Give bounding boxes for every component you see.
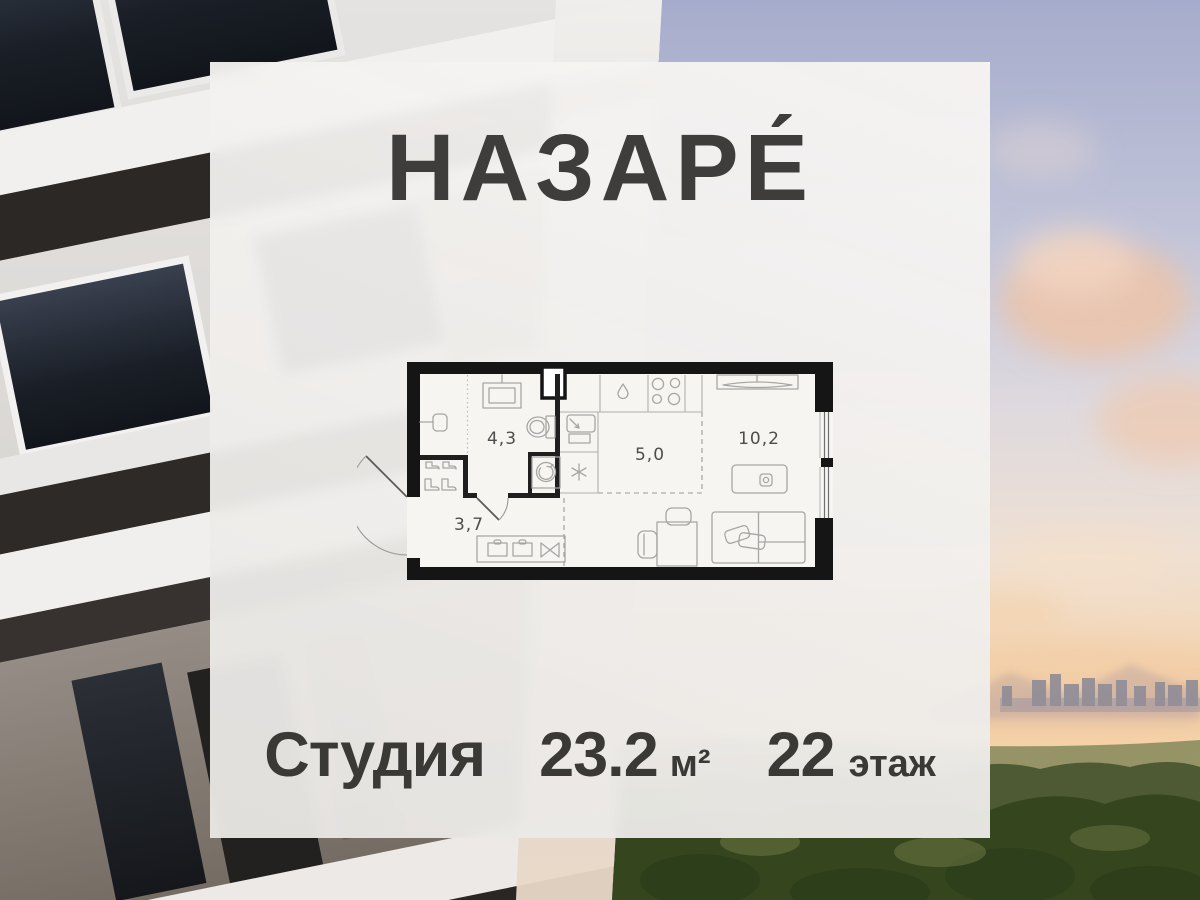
listing-card[interactable]: НАЗАРЕ́	[210, 62, 990, 838]
floorplan-image: 4,3 5,0 10,2 3,7	[357, 354, 841, 588]
room-area-hallway: 3,7	[454, 515, 484, 535]
entrance-door	[357, 456, 407, 555]
project-title: НАЗАРЕ́	[210, 121, 990, 216]
shaft	[542, 367, 565, 398]
floor-unit-label: этаж	[849, 743, 936, 786]
apartment-type-label: Студия	[264, 719, 485, 791]
floorplan-floor	[407, 362, 833, 580]
area-unit-label: м²	[670, 743, 711, 786]
stats-row: Студия 23.2 м² 22 этаж	[210, 719, 990, 791]
room-area-living: 10,2	[738, 429, 780, 449]
total-area-value: 23.2	[539, 719, 658, 791]
promo-screen: НАЗАРЕ́	[0, 0, 1200, 900]
room-area-kitchen: 5,0	[635, 445, 665, 465]
room-area-bathroom: 4,3	[487, 429, 517, 449]
floor-number-value: 22	[767, 719, 835, 791]
